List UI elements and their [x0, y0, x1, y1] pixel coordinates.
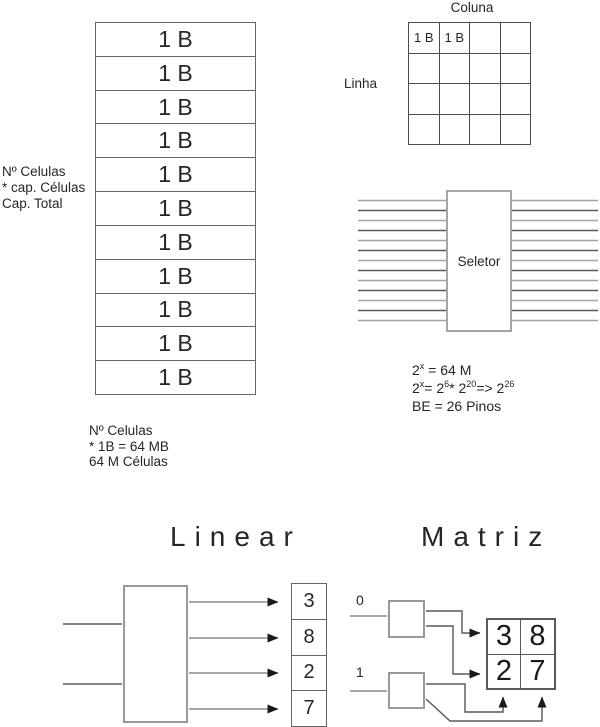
- matriz-col-connector: [426, 697, 542, 721]
- memory-cell: 1 B: [95, 123, 256, 158]
- memory-cell: 1 B: [95, 225, 256, 260]
- memory-cell: 1 B: [95, 157, 256, 192]
- matrix-memory-cell: [501, 54, 532, 85]
- matriz-grid: 3827: [486, 618, 556, 690]
- note-line: Nº Celulas: [89, 423, 169, 439]
- matrix-memory-cell: 1 B: [440, 23, 471, 54]
- memory-stack: 1 B1 B1 B1 B1 B1 B1 B1 B1 B1 B1 B: [95, 22, 256, 395]
- linear-decoder-box: [123, 585, 188, 723]
- formulas-block: 2x = 64 M 2x= 26* 220=> 226 BE = 26 Pino…: [412, 362, 514, 414]
- formula-part: 6: [444, 379, 449, 389]
- formula-f1: 2x = 64 M: [412, 362, 514, 380]
- formula-f2: 2x= 26* 220=> 226: [412, 380, 514, 398]
- memory-cell: 1 B: [95, 360, 256, 395]
- formula-part: = 2: [424, 380, 444, 396]
- matrix-memory-cell: [440, 115, 471, 146]
- matrix-memory-cell: [409, 115, 440, 146]
- memory-organization-diagram: 1 B1 B1 B1 B1 B1 B1 B1 B1 B1 B1 B Nº Cel…: [0, 0, 600, 727]
- formula-part: => 2: [476, 380, 504, 396]
- formula-part: x: [420, 361, 425, 371]
- matrix-memory-cell: [470, 115, 501, 146]
- matriz-decoder-0-box: [388, 600, 425, 638]
- stack-side-note: Nº Celulas* cap. CélulasCap. Total: [2, 164, 85, 212]
- note-line: 64 M Células: [89, 454, 169, 470]
- matrix-memory-cell: [409, 84, 440, 115]
- coluna-label: Coluna: [408, 0, 536, 15]
- memory-cell: 1 B: [95, 56, 256, 91]
- memory-cell: 1 B: [95, 90, 256, 125]
- memory-cell: 1 B: [95, 259, 256, 294]
- matrix-memory-cell: [501, 115, 532, 146]
- note-line: Nº Celulas: [2, 164, 85, 180]
- matrix-memory-cell: [440, 84, 471, 115]
- matrix-memory-cell: 1 B: [409, 23, 440, 54]
- note-line: * 1B = 64 MB: [89, 439, 169, 455]
- memory-cell: 1 B: [95, 293, 256, 328]
- matriz-decoder-1-box: [388, 672, 425, 709]
- matrix-memory-grid: 1 B1 B: [408, 22, 531, 145]
- formula-part: * 2: [449, 380, 466, 396]
- matrix-memory-cell: [409, 54, 440, 85]
- matriz-grid-cell: 7: [521, 655, 554, 689]
- formula-part: 20: [466, 379, 476, 389]
- linear-output-cell: 7: [291, 690, 327, 727]
- formula-part: 2: [412, 362, 420, 378]
- note-line: * cap. Células: [2, 180, 85, 196]
- matrix-memory-cell: [501, 23, 532, 54]
- linear-output-cell: 3: [291, 583, 327, 620]
- formula-f3: BE = 26 Pinos: [412, 398, 514, 414]
- formula-part: x: [420, 379, 425, 389]
- matrix-memory-cell: [470, 84, 501, 115]
- matriz-select-0-label: 0: [356, 592, 364, 608]
- linear-output-cell: 2: [291, 655, 327, 692]
- memory-cell: 1 B: [95, 326, 256, 361]
- matriz-grid-cell: 3: [488, 620, 521, 655]
- matriz-title: Matriz: [421, 521, 551, 553]
- linha-label: Linha: [344, 76, 377, 91]
- linear-output-cell: 8: [291, 619, 327, 656]
- selector-label: Seletor: [458, 254, 501, 269]
- linear-output-stack: 3827: [291, 583, 327, 727]
- formula-part: 2: [412, 380, 420, 396]
- note-line: Cap. Total: [2, 196, 85, 212]
- matriz-grid-cell: 2: [488, 655, 521, 689]
- matriz-grid-cell: 8: [521, 620, 554, 655]
- memory-cell: 1 B: [95, 22, 256, 57]
- stack-bottom-note: Nº Celulas* 1B = 64 MB64 M Células: [89, 423, 169, 470]
- matrix-memory-cell: [470, 23, 501, 54]
- formula-part: = 64 M: [424, 362, 471, 378]
- matrix-memory-cell: [470, 54, 501, 85]
- formula-part: 26: [504, 379, 514, 389]
- matrix-memory-cell: [501, 84, 532, 115]
- linear-title: Linear: [170, 521, 302, 553]
- matriz-select-1-label: 1: [356, 664, 364, 680]
- memory-cell: 1 B: [95, 191, 256, 226]
- selector-box: Seletor: [446, 190, 512, 332]
- matrix-memory-cell: [440, 54, 471, 85]
